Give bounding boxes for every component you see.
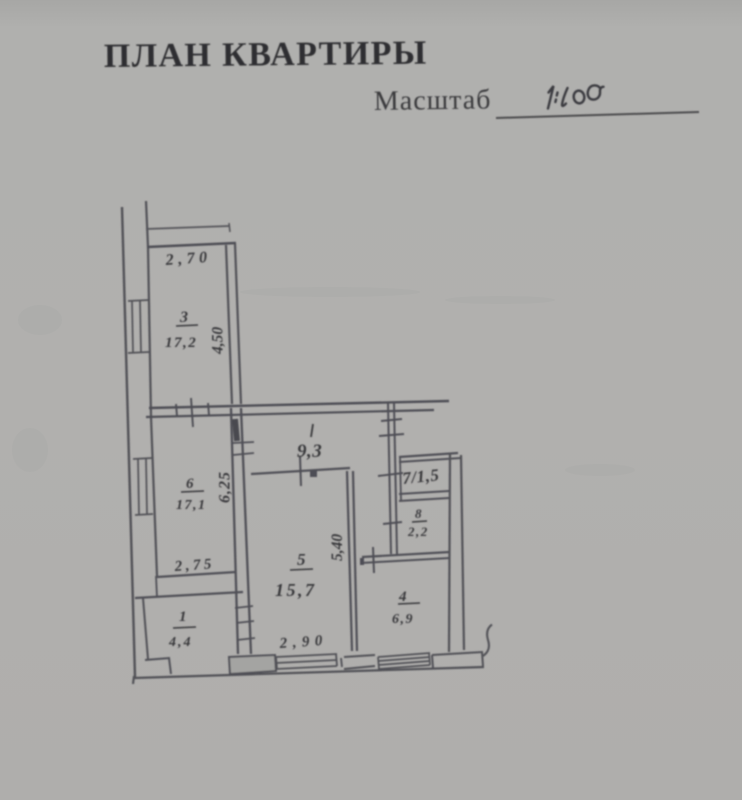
svg-text:4,4: 4,4	[168, 635, 193, 650]
svg-text:5: 5	[297, 550, 306, 569]
svg-text:7/1,5: 7/1,5	[401, 465, 440, 488]
svg-text:1: 1	[179, 609, 187, 625]
svg-text:15,7: 15,7	[275, 580, 317, 600]
svg-text:2,90: 2,90	[278, 633, 328, 652]
svg-text:Масштаб: Масштаб	[374, 84, 492, 117]
svg-text:2,2: 2,2	[407, 524, 429, 539]
svg-text:5,40: 5,40	[329, 534, 346, 561]
svg-text:17,1: 17,1	[176, 498, 207, 513]
svg-text:8: 8	[415, 506, 422, 521]
svg-text:6: 6	[186, 476, 194, 492]
svg-text:2,70: 2,70	[164, 249, 212, 269]
svg-text:2,75: 2,75	[173, 556, 215, 575]
svg-text:17,2: 17,2	[165, 335, 197, 351]
svg-text:6,25: 6,25	[217, 471, 234, 503]
svg-text:6,9: 6,9	[392, 612, 414, 627]
svg-text:4: 4	[398, 589, 407, 605]
svg-text:4,50: 4,50	[210, 327, 227, 355]
svg-text:9,3: 9,3	[297, 441, 322, 462]
svg-text:ПЛАН КВАРТИРЫ: ПЛАН КВАРТИРЫ	[104, 35, 428, 75]
svg-text:3: 3	[179, 309, 188, 326]
